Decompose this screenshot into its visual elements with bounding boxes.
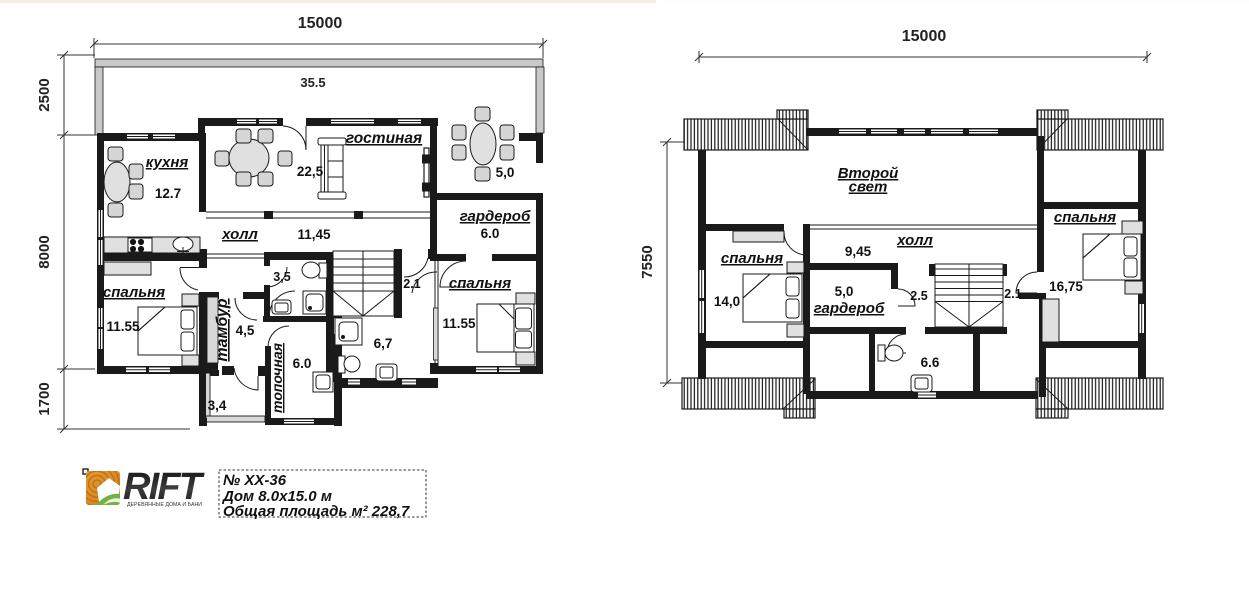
svg-text:Общая площадь м² 228,7: Общая площадь м² 228,7: [223, 503, 410, 520]
svg-text:спальня: спальня: [103, 284, 165, 301]
svg-text:№ ХХ-36: № ХХ-36: [223, 472, 287, 489]
svg-text:11,45: 11,45: [297, 227, 331, 242]
svg-text:16,75: 16,75: [1049, 279, 1083, 294]
svg-text:2.5: 2.5: [910, 289, 927, 303]
svg-text:11.55: 11.55: [106, 319, 140, 334]
svg-text:7550: 7550: [639, 245, 656, 278]
svg-text:тамбур: тамбур: [214, 298, 231, 361]
svg-text:4,5: 4,5: [236, 323, 255, 338]
svg-text:6.0: 6.0: [481, 226, 500, 241]
svg-text:8000: 8000: [36, 235, 53, 268]
svg-text:кухня: кухня: [146, 154, 189, 171]
svg-text:6.6: 6.6: [921, 355, 940, 370]
svg-text:2.1: 2.1: [403, 277, 420, 291]
svg-text:9,45: 9,45: [845, 244, 872, 259]
svg-text:3,4: 3,4: [208, 398, 227, 413]
svg-text:15000: 15000: [902, 28, 947, 45]
svg-text:12.7: 12.7: [155, 186, 181, 201]
svg-text:спальня: спальня: [1054, 209, 1116, 226]
svg-text:холл: холл: [221, 226, 258, 243]
svg-text:свет: свет: [849, 179, 888, 196]
svg-text:гардероб: гардероб: [814, 300, 885, 317]
svg-text:5,0: 5,0: [835, 284, 854, 299]
svg-text:15000: 15000: [298, 15, 343, 32]
svg-text:2500: 2500: [36, 78, 53, 111]
svg-text:11.55: 11.55: [442, 316, 476, 331]
svg-text:спальня: спальня: [721, 250, 783, 267]
svg-text:топочная: топочная: [269, 343, 285, 413]
svg-text:гостиная: гостиная: [346, 130, 422, 147]
svg-text:6.0: 6.0: [293, 356, 312, 371]
svg-text:35.5: 35.5: [300, 75, 325, 90]
svg-text:2.1: 2.1: [1004, 287, 1021, 301]
svg-text:гардероб: гардероб: [460, 208, 531, 225]
svg-text:6,7: 6,7: [374, 336, 393, 351]
svg-text:3,5: 3,5: [273, 270, 290, 284]
svg-text:спальня: спальня: [449, 275, 511, 292]
svg-text:5,0: 5,0: [496, 165, 515, 180]
svg-text:ДЕРЕВЯННЫЕ ДОМА И БАНИ: ДЕРЕВЯННЫЕ ДОМА И БАНИ: [127, 502, 202, 508]
svg-text:холл: холл: [896, 232, 933, 249]
svg-text:14,0: 14,0: [714, 294, 740, 309]
svg-text:22,5: 22,5: [297, 164, 324, 179]
svg-text:1700: 1700: [36, 382, 53, 415]
